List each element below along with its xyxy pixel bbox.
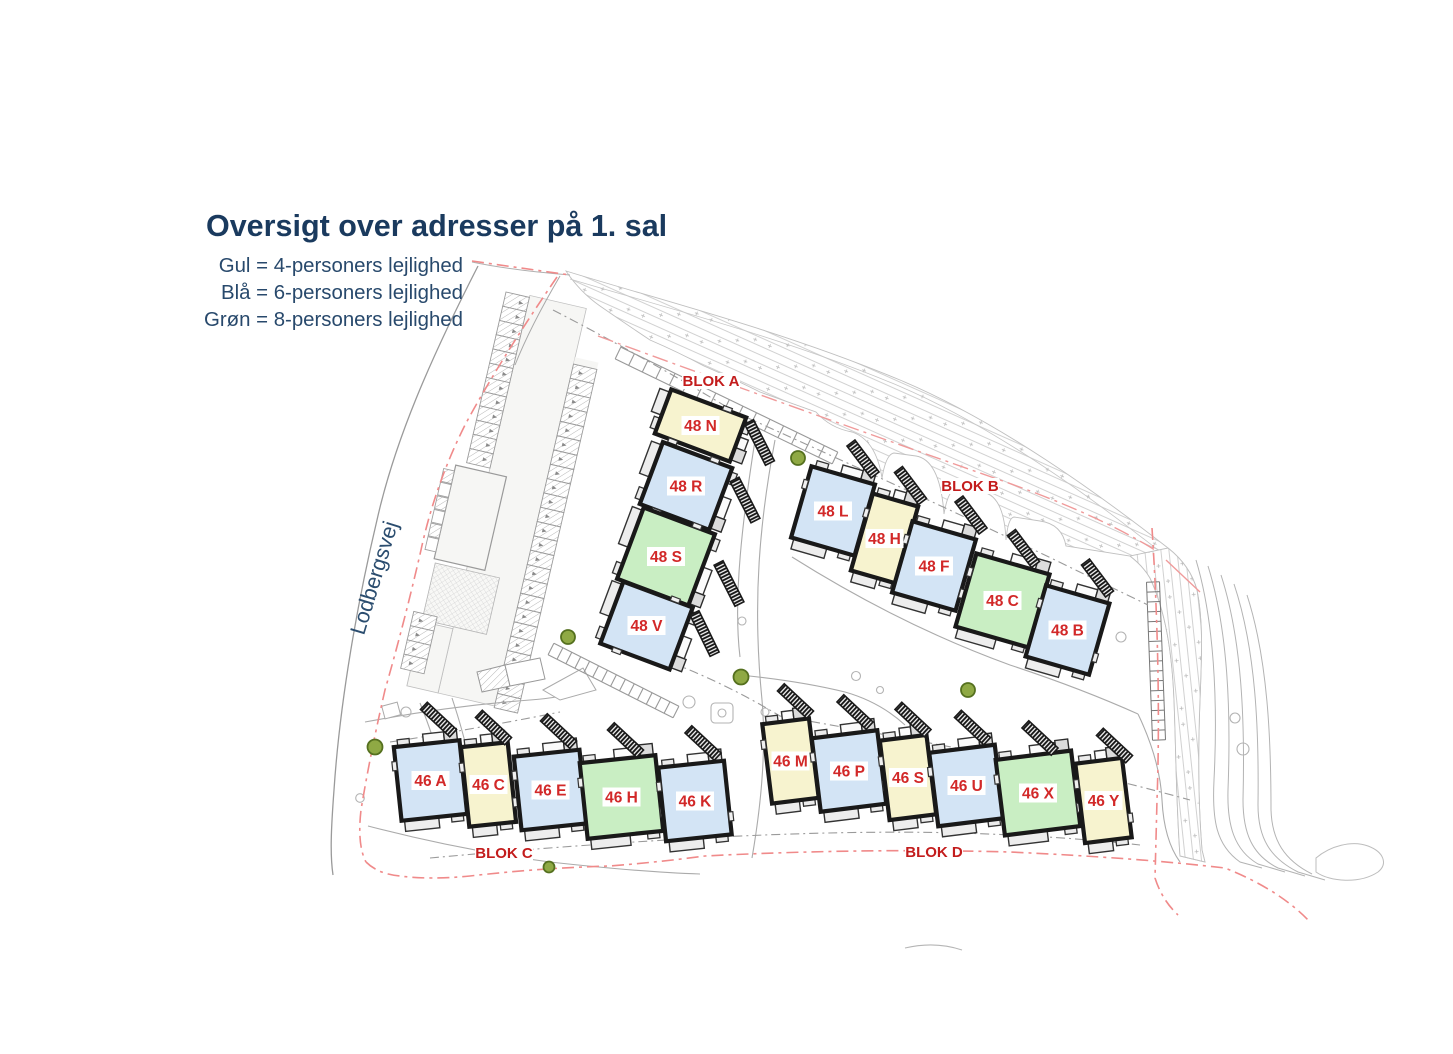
svg-text:46 A: 46 A — [414, 773, 446, 790]
svg-text:46 S: 46 S — [892, 770, 924, 787]
svg-text:48 V: 48 V — [631, 618, 664, 635]
svg-text:46 P: 46 P — [833, 764, 865, 781]
svg-text:46 X: 46 X — [1022, 786, 1055, 803]
svg-text:Gul = 4-personers lejlighed: Gul = 4-personers lejlighed — [219, 255, 463, 277]
svg-text:48 L: 48 L — [817, 504, 848, 521]
svg-text:Oversigt over adresser på 1. s: Oversigt over adresser på 1. sal — [206, 209, 667, 243]
svg-text:Grøn = 8-personers lejlighed: Grøn = 8-personers lejlighed — [204, 309, 463, 331]
svg-text:46 C: 46 C — [472, 777, 505, 794]
svg-text:46 H: 46 H — [605, 790, 638, 807]
svg-text:BLOK D: BLOK D — [905, 844, 963, 861]
svg-text:46 U: 46 U — [950, 778, 983, 795]
svg-text:BLOK A: BLOK A — [683, 373, 740, 390]
svg-text:46 K: 46 K — [679, 794, 713, 811]
svg-text:BLOK B: BLOK B — [941, 478, 999, 495]
svg-text:48 S: 48 S — [650, 549, 682, 566]
svg-text:48 N: 48 N — [684, 418, 717, 435]
svg-text:48 C: 48 C — [986, 593, 1019, 610]
svg-text:Blå = 6-personers lejlighed: Blå = 6-personers lejlighed — [221, 282, 463, 304]
svg-text:48 B: 48 B — [1051, 623, 1084, 640]
svg-text:46 Y: 46 Y — [1088, 793, 1120, 810]
svg-text:48 F: 48 F — [918, 559, 949, 576]
svg-text:46 M: 46 M — [773, 754, 807, 771]
svg-text:BLOK C: BLOK C — [475, 845, 533, 862]
svg-text:46 E: 46 E — [535, 783, 567, 800]
svg-text:48 R: 48 R — [670, 479, 703, 496]
svg-text:48 H: 48 H — [868, 531, 901, 548]
